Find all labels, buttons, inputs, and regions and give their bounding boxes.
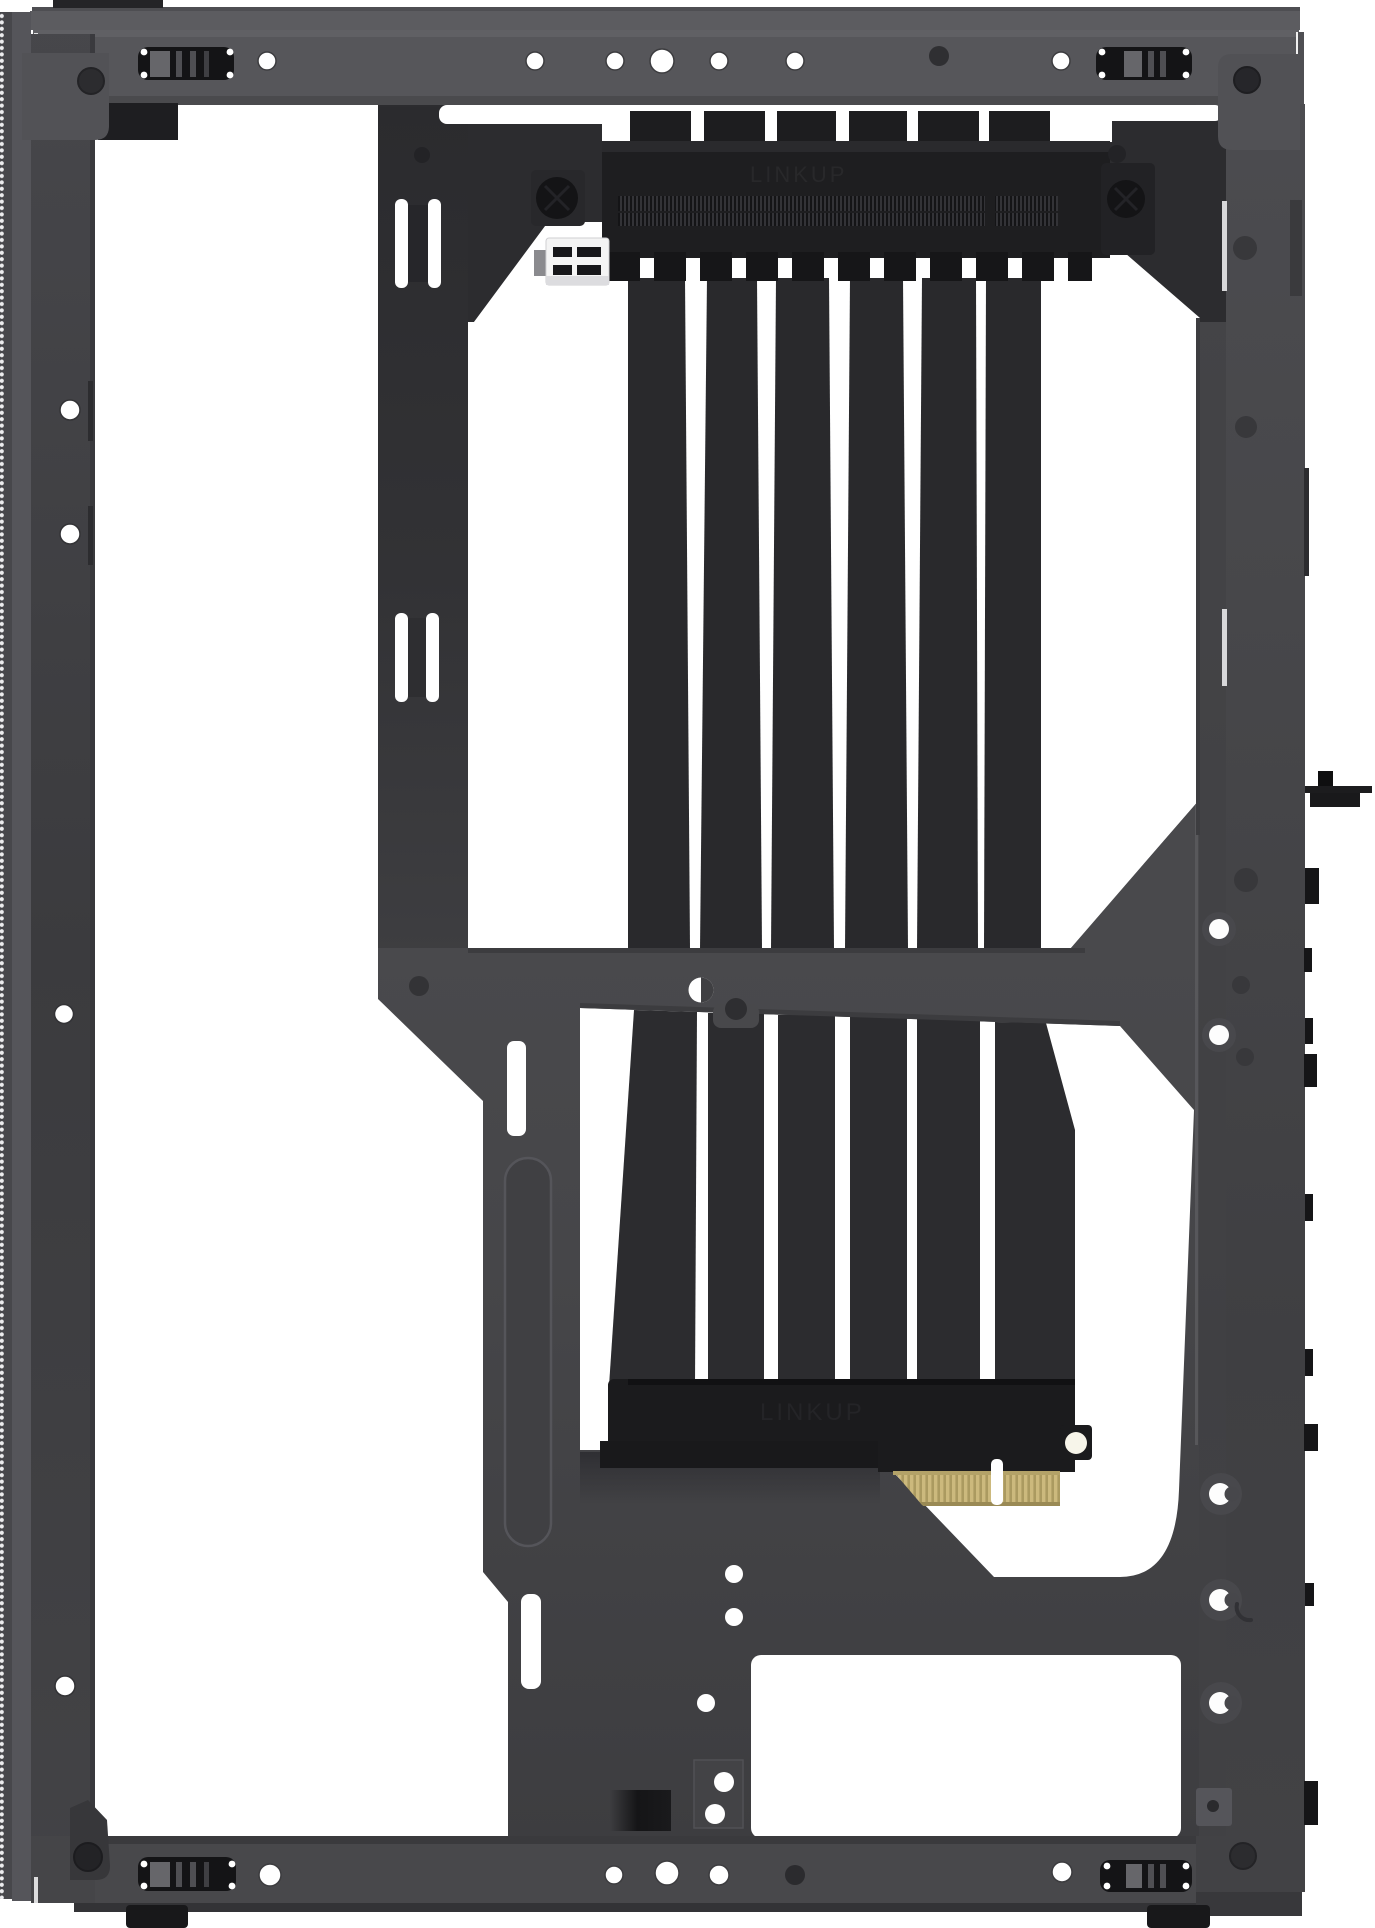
svg-text:LINKUP: LINKUP <box>760 1399 865 1426</box>
svg-text:LINKUP: LINKUP <box>750 162 847 187</box>
